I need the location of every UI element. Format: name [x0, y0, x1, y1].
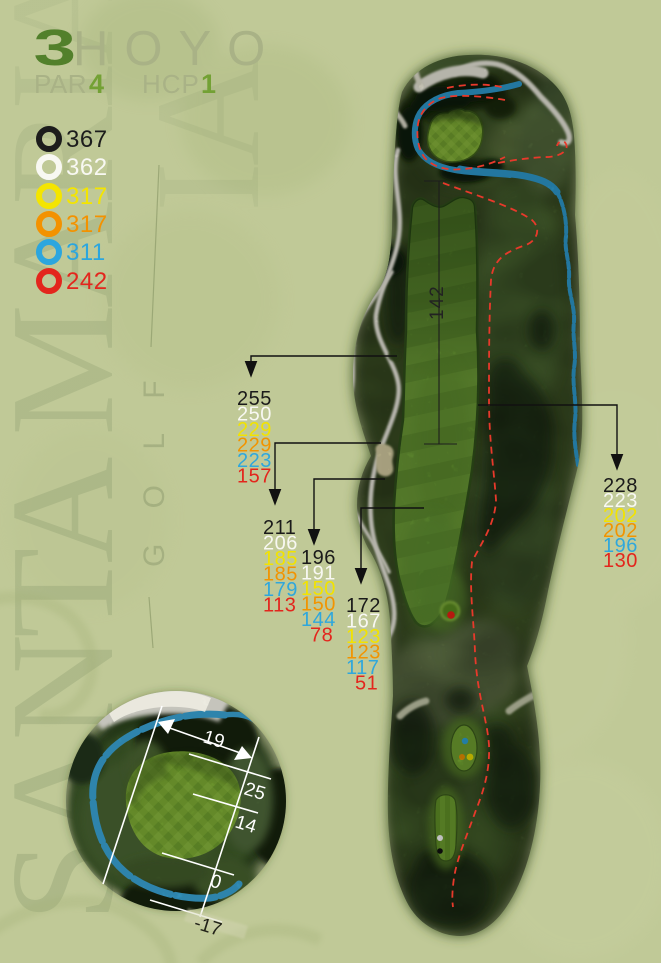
svg-text:78: 78 — [310, 625, 333, 647]
svg-text:311: 311 — [66, 239, 106, 266]
svg-text:157: 157 — [237, 466, 272, 488]
svg-text:367: 367 — [66, 126, 108, 153]
svg-text:317: 317 — [66, 183, 108, 210]
svg-text:HCP: HCP — [142, 69, 200, 99]
svg-text:51: 51 — [355, 673, 378, 695]
svg-text:G O L F: G O L F — [138, 367, 171, 567]
svg-text:362: 362 — [66, 154, 108, 181]
svg-text:3: 3 — [34, 19, 77, 76]
svg-text:113: 113 — [263, 595, 296, 617]
svg-text:242: 242 — [66, 268, 108, 295]
svg-text:317: 317 — [66, 211, 108, 238]
svg-text:130: 130 — [603, 550, 638, 572]
svg-text:PAR: PAR — [34, 69, 87, 99]
svg-text:1: 1 — [201, 69, 216, 99]
svg-text:142: 142 — [427, 285, 448, 320]
svg-text:4: 4 — [89, 69, 104, 99]
svg-text:HOYO: HOYO — [73, 22, 281, 76]
